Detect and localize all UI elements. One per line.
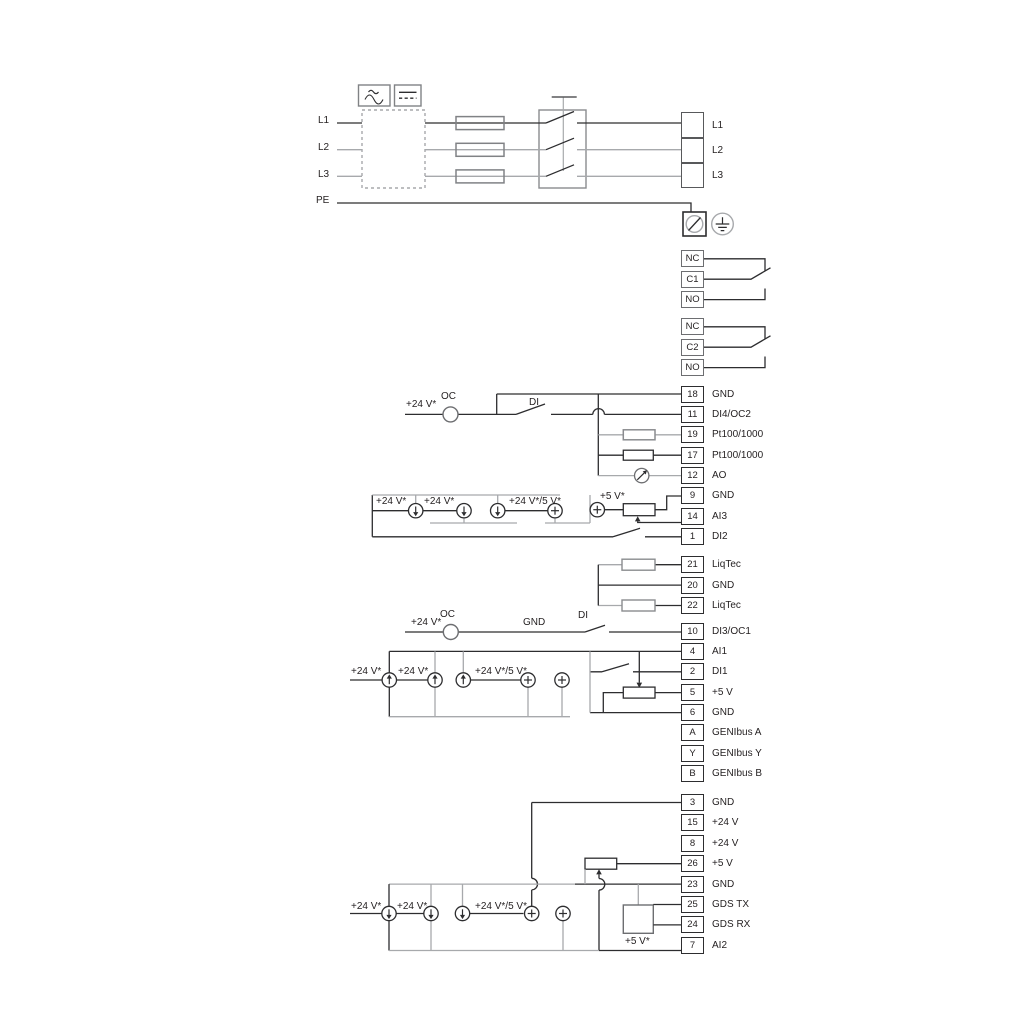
table-row: 4 AI1 (681, 643, 762, 660)
table-row: 23 GND (681, 876, 750, 893)
terminal-number: 1 (690, 531, 695, 542)
potentiometer-icon (623, 504, 655, 516)
terminal-number: 9 (690, 490, 695, 501)
terminal-number: NC (686, 253, 700, 264)
terminal-label: +5 V (712, 858, 733, 869)
terminal-cell (681, 138, 704, 163)
table-row: 7 AI2 (681, 937, 750, 954)
pt100-resistor-icon (623, 430, 655, 440)
terminal-cell: 21 (681, 556, 704, 573)
oc-label: OC (440, 609, 455, 621)
table-row: 5 +5 V (681, 684, 762, 701)
di-label: DI (529, 397, 539, 409)
terminal-number: B (689, 768, 695, 779)
terminal-label: +5 V (712, 687, 733, 698)
terminal-number: C2 (686, 342, 698, 353)
terminal-cell: 15 (681, 814, 704, 831)
terminal-number: 14 (687, 511, 698, 522)
terminal-cell: 18 (681, 386, 704, 403)
terminal-cell: 5 (681, 684, 704, 701)
terminal-number: A (689, 727, 695, 738)
terminal-cell: 26 (681, 855, 704, 872)
supply-label: +24 V* (351, 666, 381, 678)
supply-label: +5 V* (625, 936, 650, 948)
terminal-cell: 25 (681, 896, 704, 913)
table-row: 18 GND (681, 386, 763, 403)
mains-wires (337, 112, 691, 213)
supply-label: +24 V* (424, 496, 454, 508)
table-row: L2 (681, 138, 723, 163)
terminal-label: GDS TX (712, 899, 749, 910)
terminal-number: 4 (690, 646, 695, 657)
terminal-cell: 12 (681, 467, 704, 484)
terminal-number: 11 (688, 409, 698, 420)
terminal-label: DI2 (712, 531, 728, 542)
terminal-cell: 23 (681, 876, 704, 893)
open-collector-icon (443, 625, 458, 640)
table-row: A GENIbus A (681, 724, 762, 741)
terminal-label: DI1 (712, 666, 728, 677)
table-row: 12 AO (681, 467, 763, 484)
terminal-label: DI4/OC2 (712, 409, 751, 420)
oc-label: OC (441, 391, 456, 403)
mains-input-label-l1: L1 (318, 115, 329, 127)
terminal-label: AI1 (712, 646, 727, 657)
terminal-cell: 7 (681, 937, 704, 954)
analog-output-meter-icon (635, 468, 649, 482)
wiper-arrow-icon (635, 516, 641, 521)
terminal-label: +24 V (712, 838, 738, 849)
liqtec-sensor-icon (622, 559, 655, 570)
terminal-cell: 1 (681, 528, 704, 545)
filter-box (362, 110, 425, 188)
relay2-contact (704, 327, 771, 368)
terminal-number: 23 (687, 879, 698, 890)
table-row: 24 GDS RX (681, 916, 750, 933)
terminal-number: 10 (687, 626, 698, 637)
pt100-resistor-icon (623, 450, 653, 460)
table-row: 25 GDS TX (681, 896, 750, 913)
terminal-label: L3 (712, 170, 723, 181)
table-row: L1 (681, 112, 723, 137)
terminal-label: GENIbus B (712, 768, 762, 779)
terminal-label: LiqTec (712, 559, 741, 570)
mains-input-label-l2: L2 (318, 142, 329, 154)
earth-ground-icon (712, 213, 734, 235)
terminal-cell: 17 (681, 447, 704, 464)
terminal-label: LiqTec (712, 600, 741, 611)
table-row: NO (681, 359, 712, 376)
relay1-block: NC C1 NO (681, 250, 712, 308)
terminal-cell: 3 (681, 794, 704, 811)
terminal-cell: 14 (681, 508, 704, 525)
supply-label: +24 V*/5 V* (475, 666, 527, 678)
table-row: 17 Pt100/1000 (681, 447, 763, 464)
terminal-cell: NO (681, 291, 704, 308)
terminal-cell: B (681, 765, 704, 782)
terminal-number: 25 (687, 899, 698, 910)
table-row: 20 GND (681, 577, 741, 594)
relay2-block: NC C2 NO (681, 318, 712, 376)
supply-label: +5 V* (600, 491, 625, 503)
table-row: 11 DI4/OC2 (681, 406, 763, 423)
table-row: Y GENIbus Y (681, 745, 762, 762)
terminal-label: GENIbus Y (712, 748, 762, 759)
supply-label: +24 V* (397, 901, 427, 913)
terminal-number: 17 (687, 450, 698, 461)
terminal-cell: NC (681, 318, 704, 335)
supply-label: +24 V*/5 V* (509, 496, 561, 508)
wiring-svg (0, 0, 1024, 1024)
terminal-label: GND (712, 389, 734, 400)
terminal-number: 21 (687, 559, 698, 570)
supply-label: +24 V* (406, 399, 436, 411)
potentiometer-icon (623, 687, 655, 698)
supply-label: +24 V* (411, 617, 441, 629)
liqtec-block: 21 LiqTec 20 GND 22 LiqTec (681, 556, 741, 614)
terminal-cell: A (681, 724, 704, 741)
terminal-cell: 9 (681, 487, 704, 504)
mains-input-label-l3: L3 (318, 169, 329, 181)
table-row: NC (681, 250, 712, 267)
terminal-label: L1 (712, 120, 723, 131)
terminal-label: AI3 (712, 511, 727, 522)
terminal-number: 26 (687, 858, 698, 869)
terminal-number: 20 (687, 580, 698, 591)
terminal-label: AI2 (712, 940, 727, 951)
table-row: 14 AI3 (681, 508, 763, 525)
table-row: 10 DI3/OC1 (681, 623, 762, 640)
terminal-cell (681, 112, 704, 137)
io-block-a: 18 GND 11 DI4/OC2 19 Pt100/1000 17 Pt100… (681, 386, 763, 546)
supply-label: +24 V* (376, 496, 406, 508)
terminal-cell: NO (681, 359, 704, 376)
terminal-cell: 4 (681, 643, 704, 660)
table-row: 6 GND (681, 704, 762, 721)
terminal-label: GDS RX (712, 919, 750, 930)
terminal-number: NO (685, 362, 699, 373)
terminal-number: 6 (690, 707, 695, 718)
table-row: B GENIbus B (681, 765, 762, 782)
dc-symbol-icon (395, 85, 422, 106)
terminal-cell: 22 (681, 597, 704, 614)
terminal-label: DI3/OC1 (712, 626, 751, 637)
table-row: NO (681, 291, 712, 308)
terminal-number: 19 (687, 429, 698, 440)
terminal-number: 22 (687, 600, 698, 611)
open-collector-icon (443, 407, 458, 422)
mains-input-label-pe: PE (316, 195, 329, 207)
io-block-c: 3 GND 15 +24 V 8 +24 V 26 +5 V 23 GND 25… (681, 794, 750, 954)
table-row: 1 DI2 (681, 528, 763, 545)
supply-label: +24 V* (398, 666, 428, 678)
terminal-cell: 2 (681, 663, 704, 680)
terminal-label: GND (712, 707, 734, 718)
terminal-cell: 20 (681, 577, 704, 594)
terminal-label: GND (712, 490, 734, 501)
supply-label: +24 V* (351, 901, 381, 913)
terminal-label: +24 V (712, 817, 738, 828)
terminal-cell: 8 (681, 835, 704, 852)
wiper-arrow-icon (596, 869, 602, 874)
terminal-cell: 6 (681, 704, 704, 721)
table-row: 15 +24 V (681, 814, 750, 831)
table-row: L3 (681, 163, 723, 188)
terminal-label: L2 (712, 145, 723, 156)
terminal-number: C1 (686, 274, 698, 285)
terminal-label: Pt100/1000 (712, 450, 763, 461)
terminal-number: 3 (690, 797, 695, 808)
terminal-label: GND (712, 797, 734, 808)
terminal-number: NC (686, 321, 700, 332)
terminal-cell: NC (681, 250, 704, 267)
terminal-cell (681, 163, 704, 188)
terminal-number: NO (685, 294, 699, 305)
potentiometer-icon (585, 858, 617, 869)
table-row: NC (681, 318, 712, 335)
terminal-label: Pt100/1000 (712, 429, 763, 440)
gds-sensor-box (623, 905, 653, 933)
terminal-number: 12 (687, 470, 698, 481)
terminal-number: 15 (687, 817, 698, 828)
ac-symbol-icon (359, 85, 391, 106)
terminal-cell: 24 (681, 916, 704, 933)
terminal-number: 8 (690, 838, 695, 849)
table-row: 2 DI1 (681, 663, 762, 680)
terminal-cell: 11 (681, 406, 704, 423)
terminal-number: 2 (690, 666, 695, 677)
table-row: 3 GND (681, 794, 750, 811)
di-label: DI (578, 610, 588, 622)
terminal-cell: 19 (681, 426, 704, 443)
terminal-number: 7 (690, 940, 695, 951)
terminal-label: GENIbus A (712, 727, 761, 738)
table-row: 21 LiqTec (681, 556, 741, 573)
io-block-b: 10 DI3/OC1 4 AI1 2 DI1 5 +5 V 6 GND A GE… (681, 623, 762, 783)
terminal-number: 18 (687, 389, 698, 400)
table-row: 22 LiqTec (681, 597, 741, 614)
terminal-number: Y (689, 748, 695, 759)
table-row: 19 Pt100/1000 (681, 426, 763, 443)
terminal-cell: C2 (681, 339, 704, 356)
supply-label: +24 V*/5 V* (475, 901, 527, 913)
table-row: 8 +24 V (681, 835, 750, 852)
block-a-wires (372, 394, 681, 537)
gnd-label: GND (523, 617, 545, 629)
relay1-contact (704, 259, 771, 300)
table-row: C1 (681, 271, 712, 288)
wiring-diagram: L1 L2 L3 PE L1 L2 L3 NC C1 NO NC C2 NO 1… (0, 0, 1024, 1024)
terminal-cell: 10 (681, 623, 704, 640)
terminal-cell: C1 (681, 271, 704, 288)
liqtec-wires (598, 559, 681, 611)
terminal-cell: Y (681, 745, 704, 762)
terminal-label: GND (712, 879, 734, 890)
terminal-number: 24 (687, 919, 698, 930)
terminal-label: GND (712, 580, 734, 591)
table-row: 9 GND (681, 487, 763, 504)
table-row: C2 (681, 339, 712, 356)
table-row: 26 +5 V (681, 855, 750, 872)
terminal-label: AO (712, 470, 726, 481)
liqtec-sensor-icon (622, 600, 655, 611)
mains-output-block: L1 L2 L3 (681, 112, 723, 188)
block-c-wires (350, 803, 681, 951)
terminal-number: 5 (690, 687, 695, 698)
pe-screw-terminal-icon (683, 212, 706, 236)
